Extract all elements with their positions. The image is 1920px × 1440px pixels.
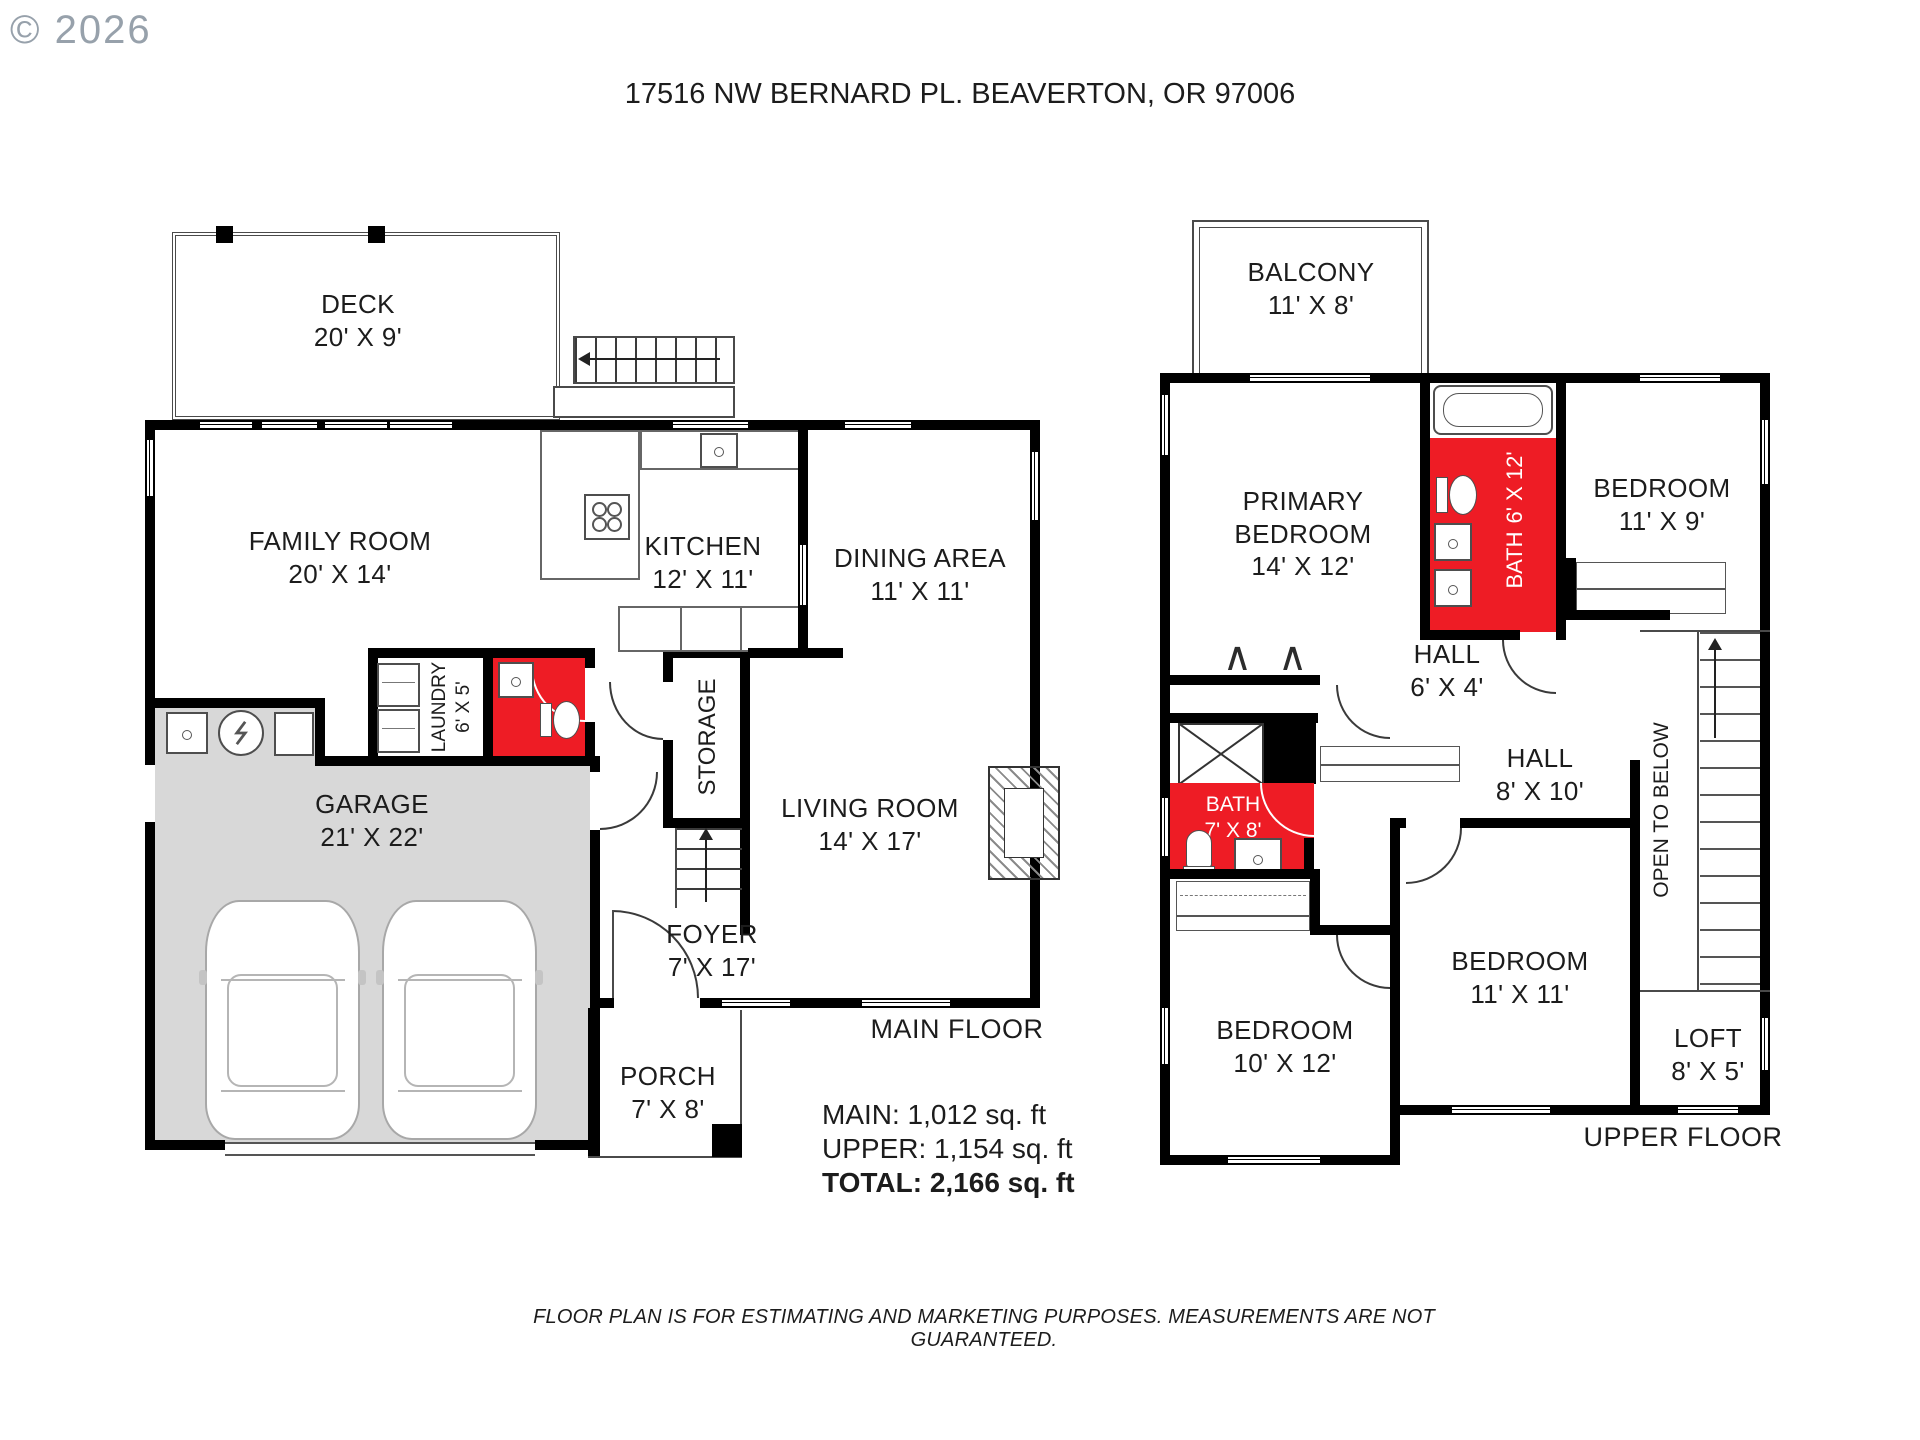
window [325, 420, 387, 430]
utility-sink-icon [166, 712, 208, 754]
balcony-label: BALCONY 11' X 8' [1211, 256, 1411, 321]
furnace-icon [274, 712, 314, 756]
interior-wall [145, 698, 325, 708]
stair-arrow [705, 838, 707, 902]
stair-arrow-head [578, 352, 590, 366]
primary-bedroom-label: PRIMARY BEDROOM 14' X 12' [1203, 485, 1403, 583]
interior-wall [1310, 925, 1390, 935]
laundry-label: LAUNDRY 6' X 5' [397, 652, 507, 762]
bedroom-11x11-label: BEDROOM 11' X 11' [1420, 945, 1620, 1010]
interior-wall [1170, 869, 1314, 879]
door-opening [585, 668, 595, 722]
bedroom-10x12-label: BEDROOM 10' X 12' [1185, 1014, 1385, 1079]
floor-plan-page: © 2026 17516 NW BERNARD PL. BEAVERTON, O… [0, 0, 1920, 1440]
sliding-door [1250, 373, 1370, 383]
bedroom-11x9-label: BEDROOM 11' X 9' [1562, 472, 1762, 537]
window [1452, 1105, 1550, 1115]
bath-sink-icon [498, 662, 534, 698]
chase-shaft [1264, 718, 1316, 784]
deck-label: DECK 20' X 9' [258, 288, 458, 353]
door-arc [1336, 935, 1390, 989]
fireplace-inner [1004, 788, 1044, 858]
page-title: 17516 NW BERNARD PL. BEAVERTON, OR 97006 [460, 78, 1460, 111]
main-floor-title: MAIN FLOOR [852, 1014, 1062, 1045]
bath-sink-icon [1434, 523, 1472, 561]
door-leaf [612, 910, 614, 998]
area-upper: UPPER: 1,154 sq. ft [822, 1132, 1142, 1166]
garage-door-arc [600, 772, 658, 830]
kitchen-sink-icon [700, 433, 738, 468]
deck-post [368, 226, 385, 243]
bifold-closet-icon: ∧∧ [1200, 640, 1330, 674]
car-icon [205, 900, 360, 1140]
interior-wall [1460, 818, 1640, 828]
window [862, 998, 950, 1008]
deck-post [216, 226, 233, 243]
open-to-below-label: OPEN TO BELOW [1647, 695, 1677, 925]
interior-wall [1566, 558, 1576, 618]
window [1030, 452, 1040, 520]
exterior-wall [145, 822, 155, 1150]
window [1160, 1008, 1170, 1064]
copyright-text: © 2026 [10, 8, 152, 53]
bath-sink-icon [1434, 569, 1472, 607]
window [1228, 1155, 1320, 1165]
toilet-icon [1449, 475, 1477, 515]
loft-label: LOFT 8' X 5' [1638, 1022, 1778, 1087]
shower-icon [1178, 723, 1264, 785]
interior-wall [585, 722, 595, 766]
foyer-label: FOYER 7' X 17' [622, 918, 802, 983]
interior-wall [1566, 610, 1670, 620]
interior-wall [1420, 373, 1430, 640]
stairs-down [1700, 632, 1760, 990]
deck-landing [553, 386, 735, 418]
living-room-label: LIVING ROOM 14' X 17' [770, 792, 970, 857]
area-main: MAIN: 1,012 sq. ft [822, 1098, 1142, 1132]
closet [1576, 562, 1726, 614]
interior-wall [798, 420, 808, 545]
porch-label: PORCH 7' X 8' [578, 1060, 758, 1125]
upper-floor-title: UPPER FLOOR [1553, 1122, 1813, 1153]
interior-wall [1390, 828, 1400, 1165]
water-heater-icon [218, 710, 264, 756]
deck-stairs [573, 336, 735, 384]
door-opening [798, 545, 808, 605]
sliding-door [390, 420, 452, 430]
window [1640, 373, 1720, 383]
window [145, 440, 155, 496]
kitchen-label: KITCHEN 12' X 11' [613, 530, 793, 595]
exterior-wall [790, 998, 862, 1008]
window [673, 420, 748, 430]
interior-wall [663, 818, 750, 828]
porch-post [712, 1124, 742, 1157]
stair-arrow [590, 358, 720, 360]
interior-wall [585, 648, 595, 668]
closet [1176, 881, 1310, 931]
dining-area-label: DINING AREA 11' X 11' [830, 542, 1010, 607]
interior-wall [748, 648, 843, 658]
stair-arrow-head [699, 828, 713, 840]
stair-edge [1640, 990, 1770, 992]
disclaimer-text: FLOOR PLAN IS FOR ESTIMATING AND MARKETI… [460, 1306, 1508, 1352]
interior-wall [798, 605, 808, 652]
toilet-icon [1186, 830, 1212, 868]
area-total: TOTAL: 2,166 sq. ft [822, 1166, 1142, 1200]
stair-edge [1697, 632, 1699, 990]
window [1678, 1105, 1738, 1115]
window [722, 998, 790, 1008]
interior-wall [1390, 818, 1406, 828]
storage-label: STORAGE [653, 677, 763, 797]
bath-6x12-label: BATH 6' X 12' [1493, 420, 1537, 620]
window [1160, 395, 1170, 455]
window [200, 420, 252, 430]
hall-6x4-label: HALL 6' X 4' [1357, 638, 1537, 703]
window [262, 420, 317, 430]
toilet-icon [540, 703, 552, 737]
family-room-label: FAMILY ROOM 20' X 14' [240, 525, 440, 590]
window [1160, 798, 1170, 856]
garage-label: GARAGE 21' X 22' [272, 788, 472, 853]
toilet-icon [1436, 477, 1448, 513]
window [845, 420, 911, 430]
stairs-up [675, 828, 742, 908]
kitchen-island [618, 606, 800, 652]
car-icon [382, 900, 537, 1140]
exterior-wall [145, 1140, 225, 1150]
hall-8x10-label: HALL 8' X 10' [1440, 742, 1640, 807]
exterior-wall [950, 998, 1040, 1008]
stair-arrow [1714, 648, 1716, 738]
closet [1320, 746, 1460, 782]
door-arc [1406, 828, 1462, 884]
garage-door [225, 1142, 535, 1156]
toilet-icon [553, 701, 580, 739]
stair-arrow-head [1708, 638, 1722, 650]
exterior-wall [700, 998, 722, 1008]
